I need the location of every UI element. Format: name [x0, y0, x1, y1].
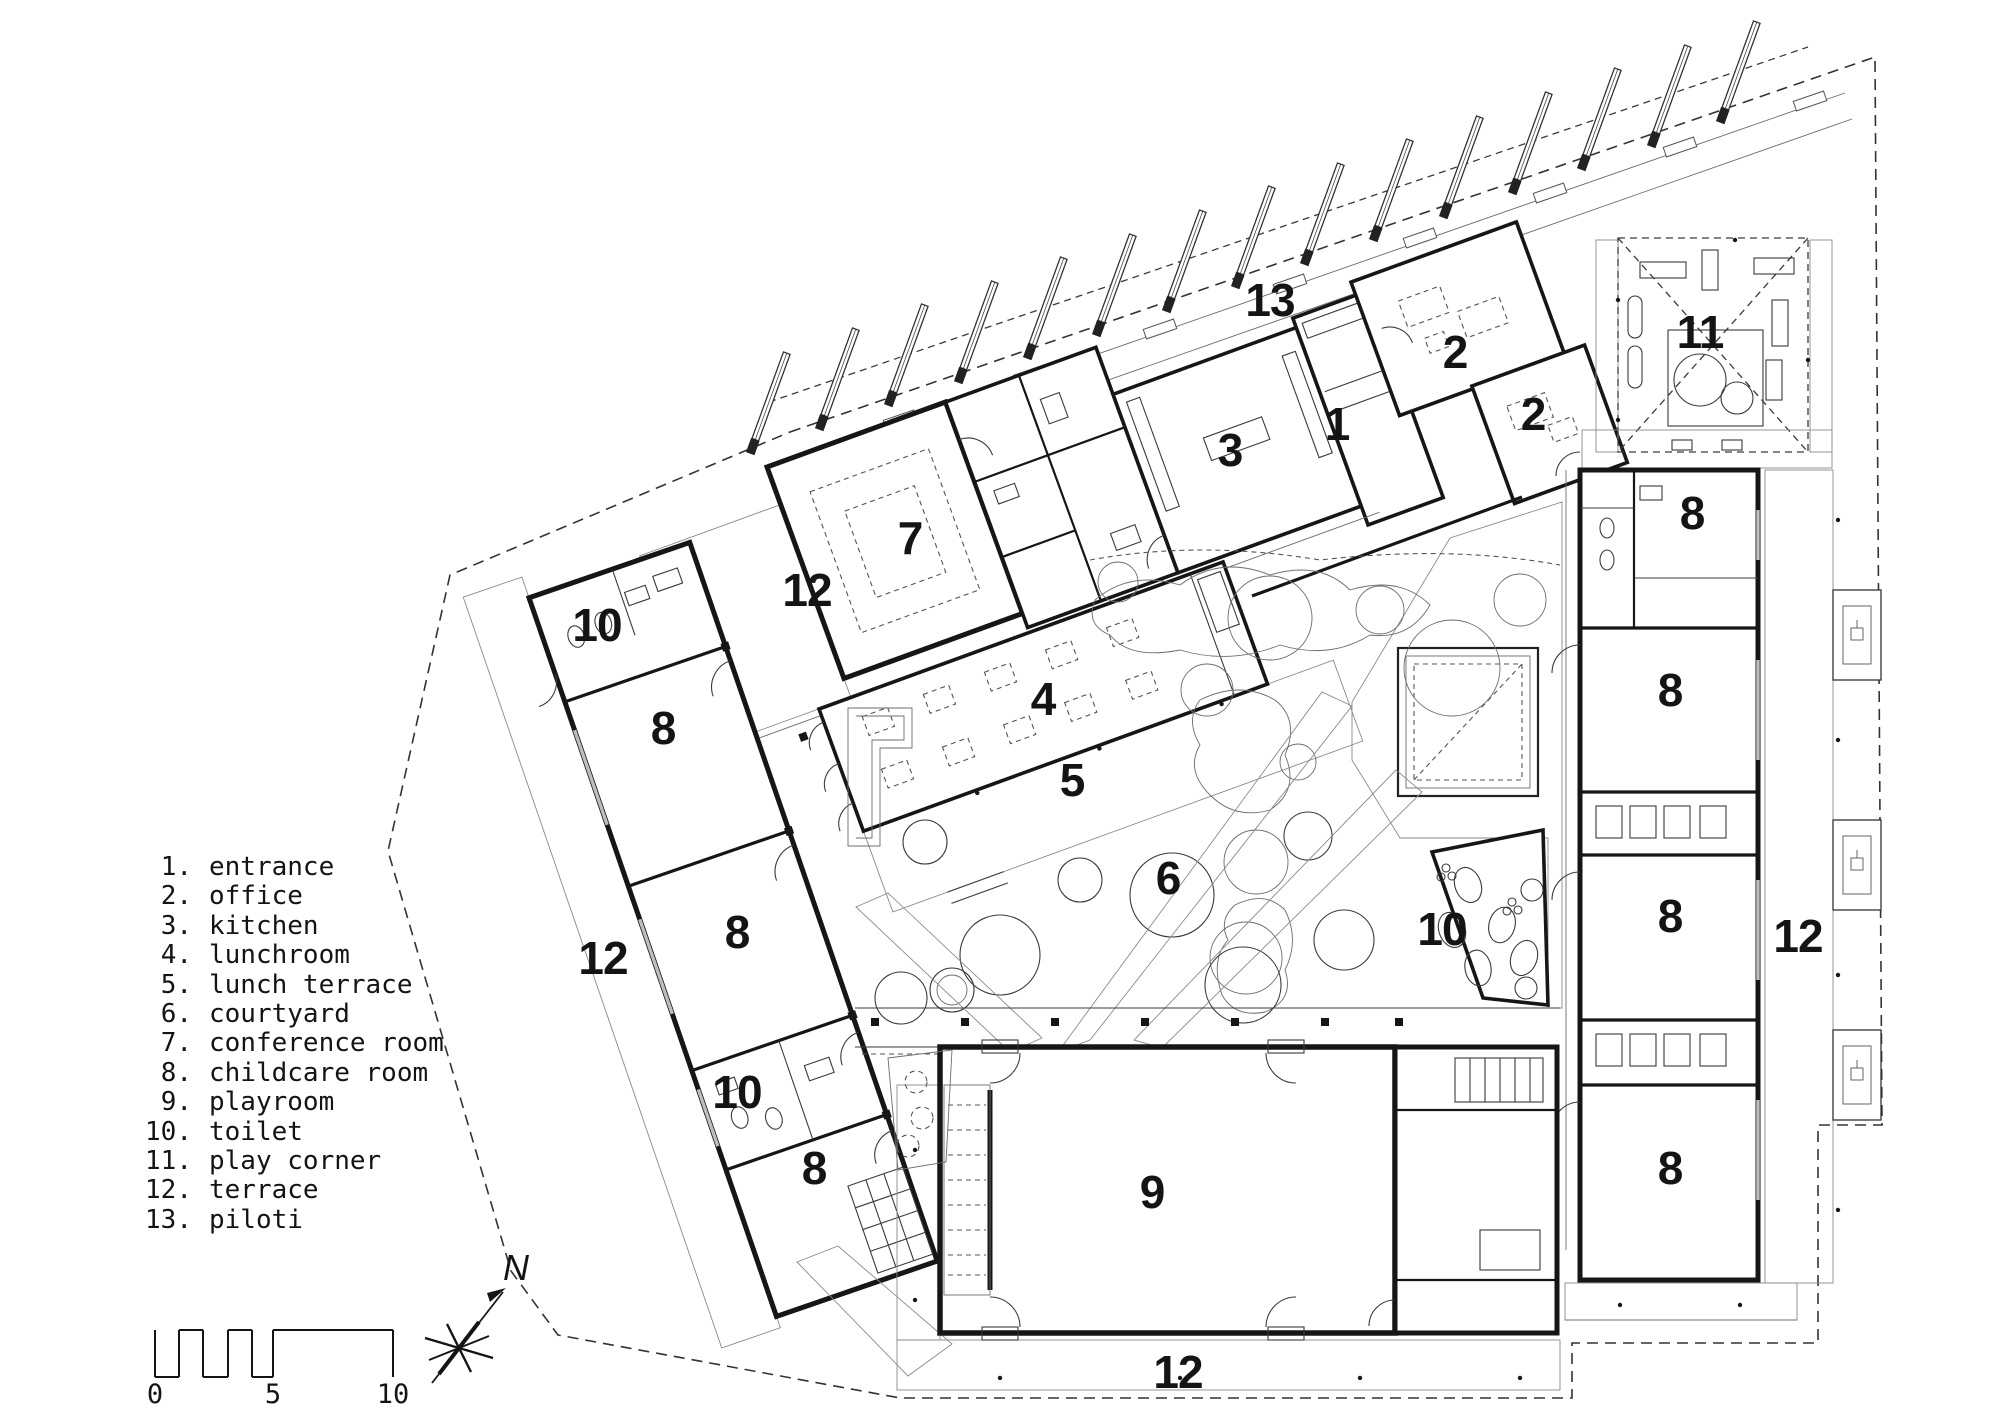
- pool: [1398, 648, 1538, 796]
- room-number-label: 2: [1443, 326, 1468, 378]
- path: [1134, 770, 1422, 1048]
- legend-item: 12.terrace: [116, 1176, 444, 1205]
- legend-item-label: kitchen: [209, 912, 319, 941]
- room-number-label: 4: [1031, 673, 1057, 725]
- room-number-label: 8: [725, 906, 750, 958]
- north-arrow: N: [425, 1247, 530, 1383]
- legend-item: 7.conference room: [116, 1029, 444, 1058]
- legend-item: 2.office: [116, 882, 444, 911]
- room-number-label: 3: [1218, 424, 1243, 476]
- room-number-label: 10: [712, 1066, 761, 1118]
- terrace-12-bottom: [897, 1340, 1560, 1390]
- legend-item-label: terrace: [209, 1176, 319, 1205]
- legend-item-label: play corner: [209, 1147, 381, 1176]
- legend-item-label: lunchroom: [209, 941, 350, 970]
- legend-item: 4.lunchroom: [116, 941, 444, 970]
- scale-tick-label: 10: [377, 1379, 410, 1410]
- room-number-label: 8: [1658, 890, 1683, 942]
- legend: 1.entrance2.office3.kitchen4.lunchroom5.…: [116, 853, 444, 1235]
- room-number-label: 1: [1325, 398, 1350, 450]
- scale-tick-label: 0: [147, 1379, 163, 1410]
- legend-item-label: toilet: [209, 1118, 303, 1147]
- scale-tick-label: 5: [265, 1379, 281, 1410]
- room-number-label: 8: [802, 1142, 827, 1194]
- path: [856, 893, 1042, 1052]
- legend-item: 1.entrance: [116, 853, 444, 882]
- room-number-label: 11: [1677, 306, 1724, 358]
- terrace-12-right: [1765, 470, 1833, 1283]
- legend-item: 11.play corner: [116, 1147, 444, 1176]
- legend-item: 6.courtyard: [116, 1000, 444, 1029]
- legend-item-number: 9.: [116, 1088, 192, 1117]
- room-number-label: 6: [1156, 852, 1181, 904]
- legend-item-number: 3.: [116, 912, 192, 941]
- room-number-label: 12: [1773, 910, 1822, 962]
- room-number-label: 8: [651, 702, 676, 754]
- room-number-label: 12: [578, 932, 627, 984]
- right-wing: [1552, 452, 1881, 1320]
- legend-item-number: 11.: [116, 1147, 192, 1176]
- scale-bar: 0510: [147, 1330, 409, 1410]
- room-number-label: 12: [1153, 1346, 1202, 1398]
- legend-item-number: 6.: [116, 1000, 192, 1029]
- room-number-label: 9: [1140, 1166, 1165, 1218]
- legend-item-label: office: [209, 882, 303, 911]
- room-number-label: 10: [1417, 903, 1466, 955]
- legend-item-number: 1.: [116, 853, 192, 882]
- storage-rooms: [1395, 1047, 1557, 1333]
- legend-item-number: 12.: [116, 1176, 192, 1205]
- legend-item: 8.childcare room: [116, 1059, 444, 1088]
- legend-item-number: 13.: [116, 1206, 192, 1235]
- north-label: N: [503, 1247, 530, 1288]
- legend-item-number: 2.: [116, 882, 192, 911]
- floor-plan-page: 1311221371210845886812108121088912 0510 …: [0, 0, 2000, 1413]
- legend-item-label: courtyard: [209, 1000, 350, 1029]
- legend-item-number: 8.: [116, 1059, 192, 1088]
- playroom-9: [940, 1047, 1395, 1333]
- legend-item-label: piloti: [209, 1206, 303, 1235]
- room-number-label: 5: [1060, 754, 1085, 806]
- legend-item: 9.playroom: [116, 1088, 444, 1117]
- legend-item: 5.lunch terrace: [116, 971, 444, 1000]
- legend-item: 10.toilet: [116, 1118, 444, 1147]
- courtyard-trees: [875, 812, 1374, 1024]
- legend-item-label: childcare room: [209, 1059, 428, 1088]
- room-number-label: 12: [782, 564, 831, 616]
- room-number-label: 13: [1245, 274, 1294, 326]
- legend-item-number: 5.: [116, 971, 192, 1000]
- legend-item-label: conference room: [209, 1029, 444, 1058]
- legend-item-number: 10.: [116, 1118, 192, 1147]
- room-number-label: 8: [1680, 487, 1705, 539]
- legend-item-number: 7.: [116, 1029, 192, 1058]
- room-number-label: 8: [1658, 664, 1683, 716]
- room-number-label: 10: [572, 599, 621, 651]
- room-number-label: 2: [1521, 388, 1546, 440]
- room-number-label: 7: [898, 512, 923, 564]
- legend-item: 13.piloti: [116, 1206, 444, 1235]
- room-number-label: 8: [1658, 1142, 1683, 1194]
- legend-item-label: entrance: [209, 853, 334, 882]
- legend-item-label: lunch terrace: [209, 971, 413, 1000]
- legend-item-label: playroom: [209, 1088, 334, 1117]
- legend-item: 3.kitchen: [116, 912, 444, 941]
- legend-item-number: 4.: [116, 941, 192, 970]
